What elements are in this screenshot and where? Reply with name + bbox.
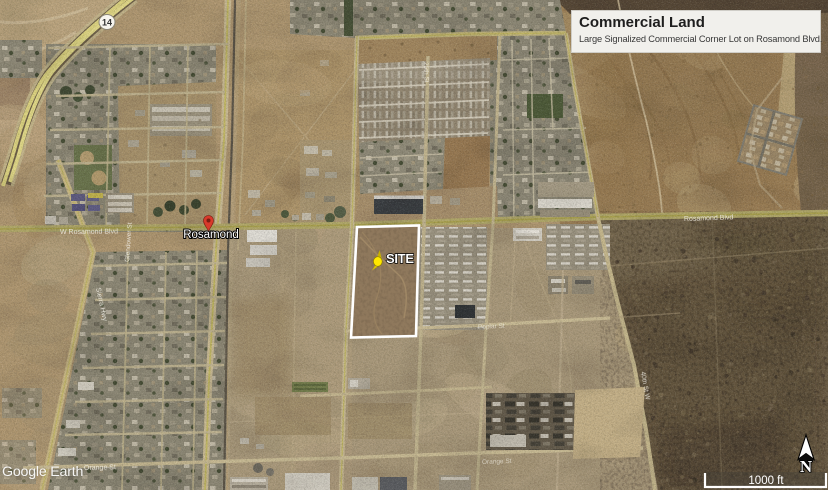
svg-text:SITE: SITE — [386, 251, 414, 266]
svg-text:1000 ft: 1000 ft — [748, 475, 784, 487]
svg-text:14: 14 — [102, 18, 112, 28]
svg-text:Rosamond: Rosamond — [183, 229, 239, 241]
svg-text:Orange St: Orange St — [84, 464, 116, 472]
svg-text:25th St: 25th St — [422, 62, 430, 83]
svg-text:W Rosamond Blvd: W Rosamond Blvd — [60, 228, 118, 236]
svg-text:Orange St: Orange St — [482, 458, 512, 466]
svg-text:Poplar St: Poplar St — [478, 323, 505, 331]
